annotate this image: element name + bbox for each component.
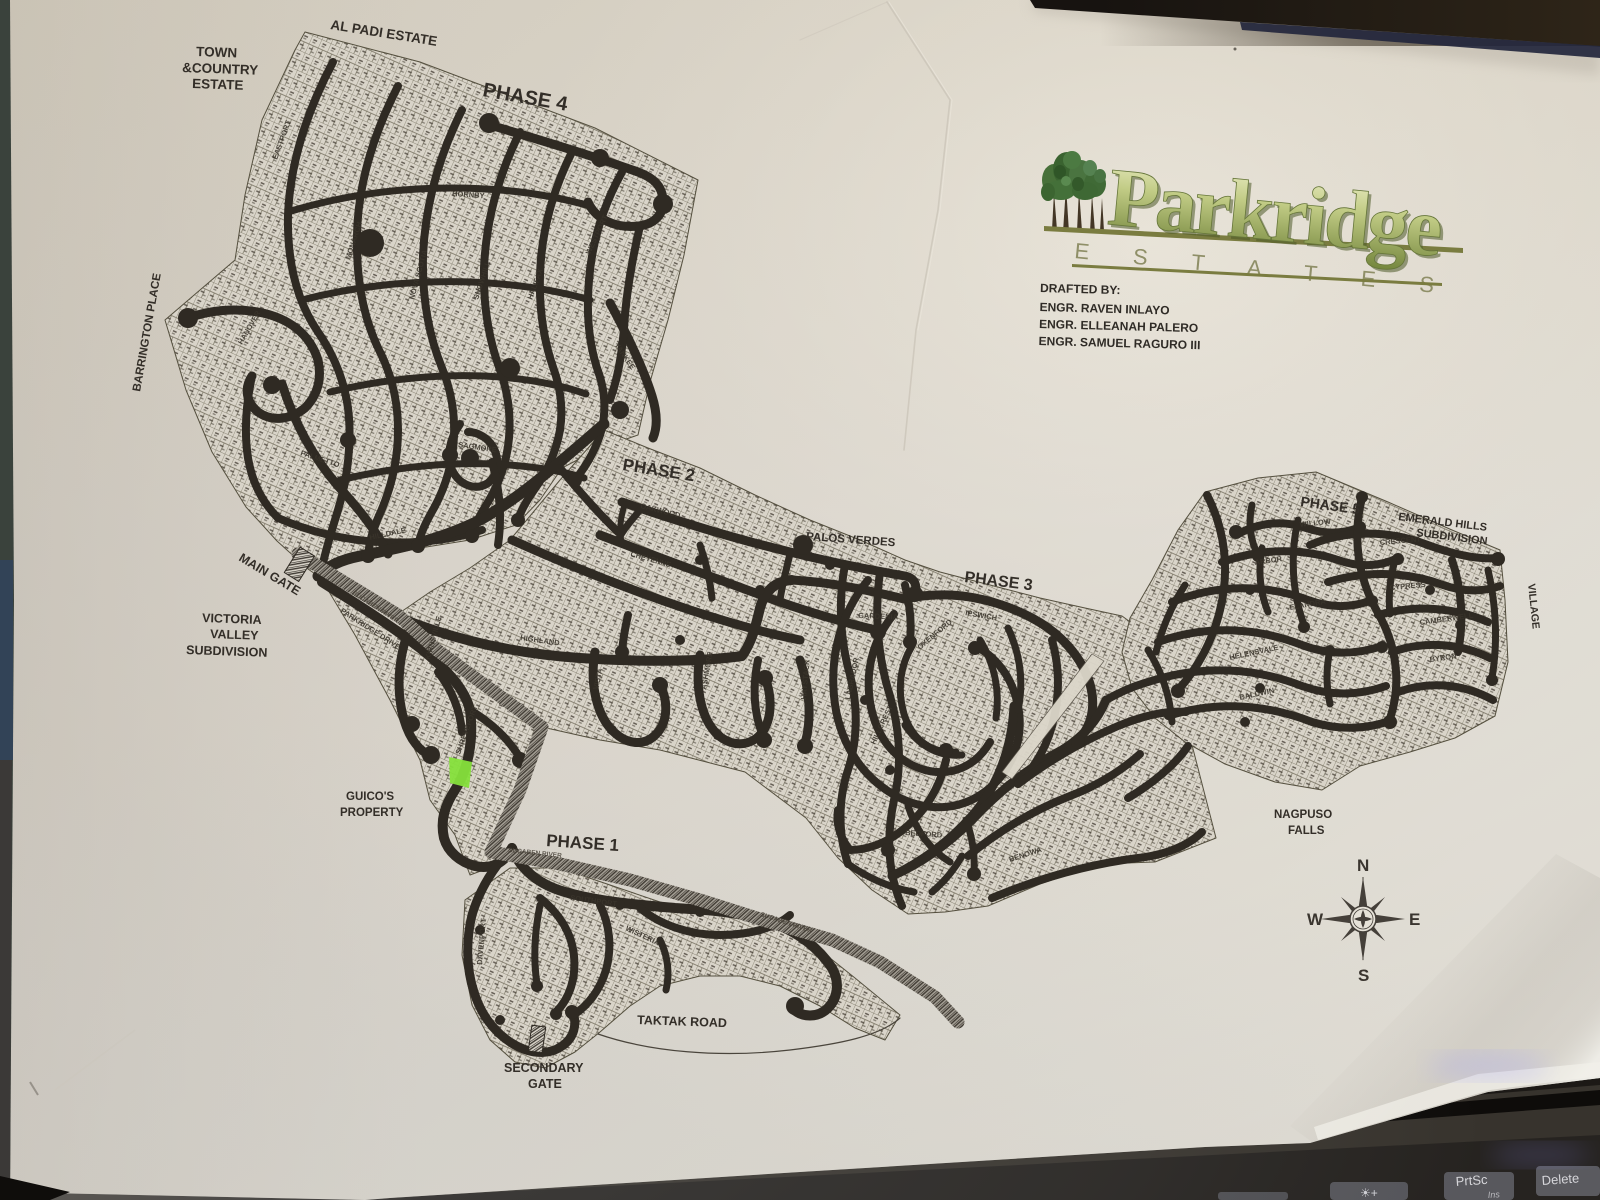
svg-text:GUICO'S: GUICO'S xyxy=(346,791,394,803)
svg-text:DRAFTED BY:: DRAFTED BY: xyxy=(1040,281,1121,297)
svg-text:GATE: GATE xyxy=(528,1077,562,1091)
svg-text:ESTATE: ESTATE xyxy=(192,76,244,93)
svg-text:GARDENIA: GARDENIA xyxy=(858,611,899,621)
svg-text:SECONDARY: SECONDARY xyxy=(504,1061,584,1075)
svg-text:VALLEY: VALLEY xyxy=(210,627,260,643)
svg-text:W: W xyxy=(1307,910,1324,929)
svg-text:E: E xyxy=(1409,910,1420,929)
svg-text:N: N xyxy=(1357,856,1369,875)
svg-text:SUBDIVISION: SUBDIVISION xyxy=(186,643,268,660)
svg-text:S: S xyxy=(1358,966,1369,985)
svg-text:TOWN: TOWN xyxy=(196,44,237,60)
svg-text:NAGPUSO: NAGPUSO xyxy=(1274,809,1332,821)
svg-text:PROPERTY: PROPERTY xyxy=(340,807,404,819)
svg-text:VICTORIA: VICTORIA xyxy=(202,611,262,627)
svg-text:FALLS: FALLS xyxy=(1288,825,1325,837)
svg-text:&COUNTRY: &COUNTRY xyxy=(182,60,258,78)
